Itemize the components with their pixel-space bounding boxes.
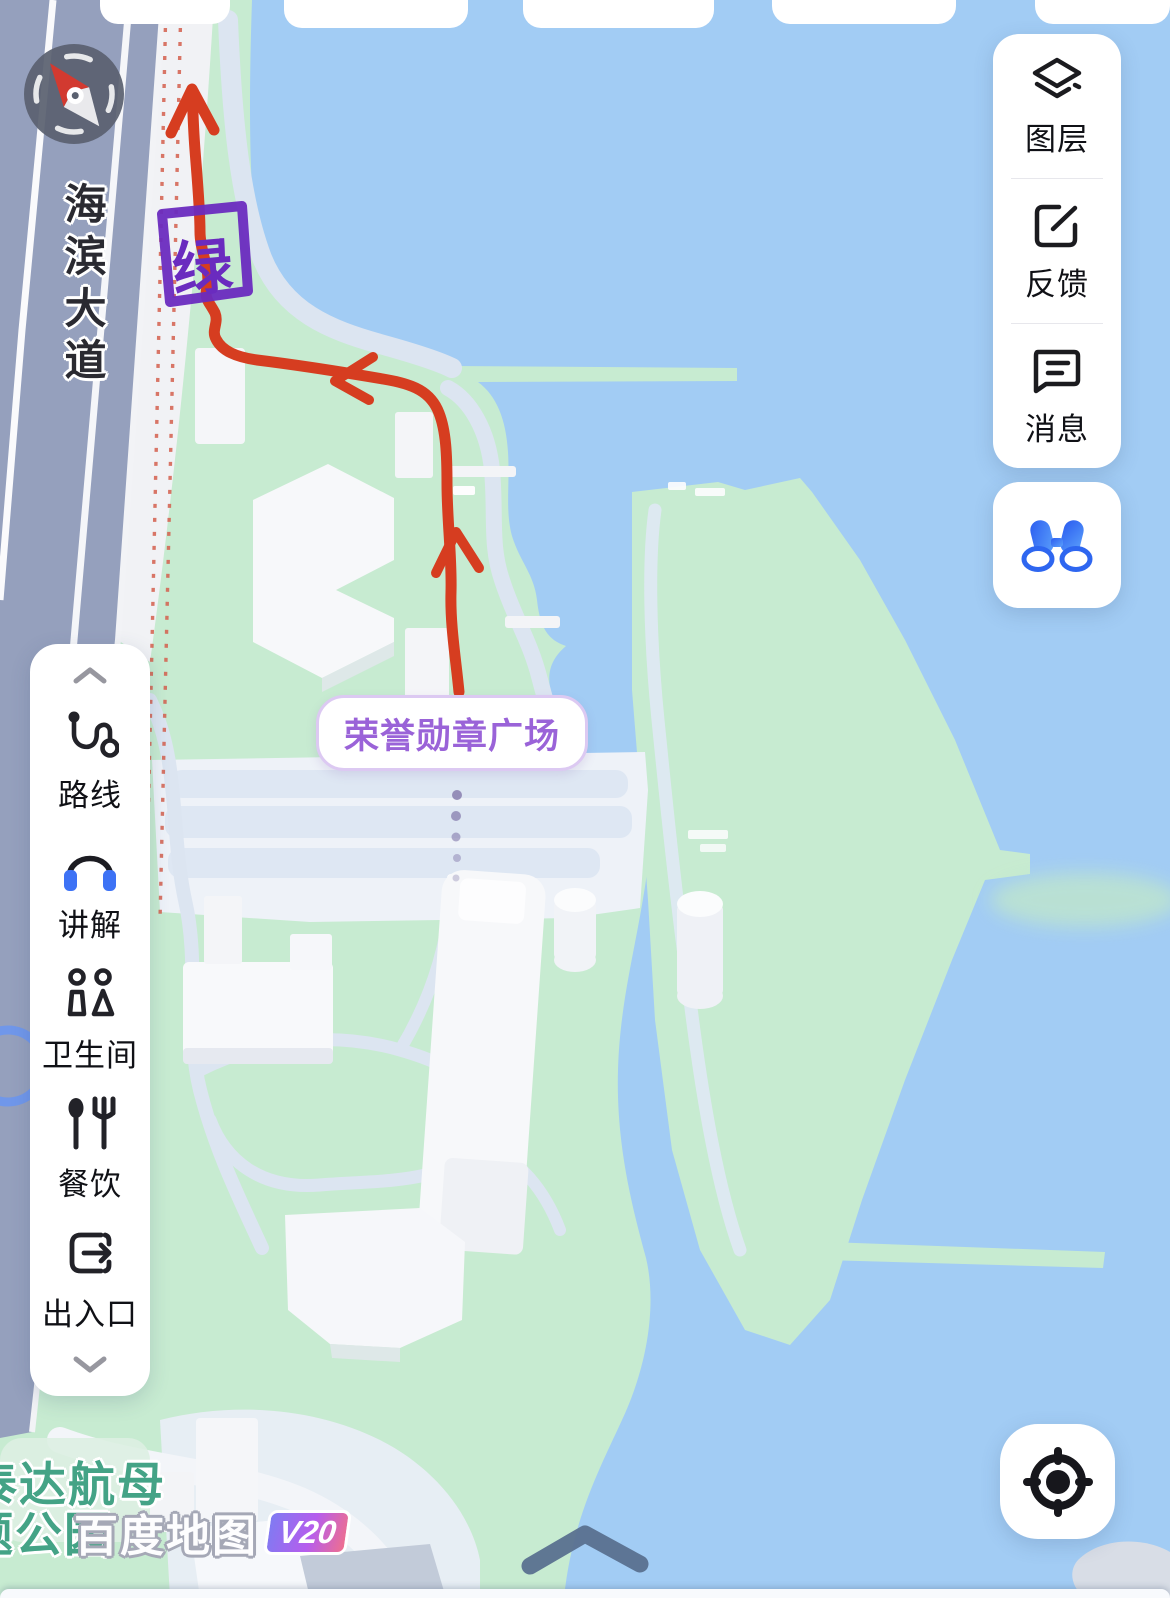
route-button[interactable]: 路线	[58, 706, 122, 815]
route-label: 路线	[58, 770, 122, 815]
dining-label: 餐饮	[58, 1159, 122, 1204]
layers-label: 图层	[1025, 114, 1089, 159]
watermark-version: V20	[276, 1514, 338, 1551]
route-icon	[61, 706, 119, 764]
message-icon	[1029, 344, 1085, 398]
headphones-icon	[61, 836, 119, 894]
panel-divider	[1011, 178, 1103, 179]
bottom-sheet-handle[interactable]	[518, 1524, 652, 1578]
entrance-exit-label: 出入口	[42, 1289, 138, 1334]
handwritten-annotation: 绿	[168, 218, 235, 310]
messages-button[interactable]: 消息	[993, 344, 1121, 449]
baidu-map-screen: 海滨大道 绿 荣誉勋章广场 泰达航母 题公园 百度地图 V20	[0, 0, 1170, 1598]
facility-panel: 路线 讲解 卫生间	[30, 644, 150, 1396]
bottom-sheet-edge[interactable]	[0, 1589, 1170, 1598]
watermark-version-badge: V20	[263, 1510, 352, 1555]
plaza-bands	[165, 770, 632, 878]
compass[interactable]	[22, 42, 126, 146]
locate-me-button[interactable]	[1000, 1424, 1115, 1539]
audio-guide-label: 讲解	[58, 900, 122, 945]
entrance-exit-button[interactable]: 出入口	[42, 1225, 138, 1334]
poi-bubble-label: 荣誉勋章广场	[344, 708, 560, 759]
watermark: 百度地图 V20	[74, 1500, 349, 1564]
binoculars-icon	[1020, 514, 1094, 576]
map-tools-panel: 图层 反馈 消息	[993, 34, 1121, 468]
exit-icon	[61, 1225, 119, 1283]
audio-guide-button[interactable]: 讲解	[58, 836, 122, 945]
feedback-label: 反馈	[1025, 259, 1089, 304]
cutlery-icon	[61, 1095, 119, 1153]
scroll-up-chevron[interactable]	[68, 665, 112, 685]
road-name-label: 海滨大道	[52, 182, 113, 390]
toilet-label: 卫生间	[42, 1030, 138, 1075]
feedback-button[interactable]: 反馈	[993, 199, 1121, 304]
layers-button[interactable]: 图层	[993, 54, 1121, 159]
ar-tour-button[interactable]	[993, 482, 1121, 608]
panel-divider	[1011, 323, 1103, 324]
scroll-down-chevron[interactable]	[68, 1355, 112, 1375]
dining-button[interactable]: 餐饮	[58, 1095, 122, 1204]
toilet-people-icon	[61, 966, 119, 1024]
layers-icon	[1029, 54, 1085, 108]
locate-target-icon	[1019, 1443, 1097, 1521]
messages-label: 消息	[1025, 404, 1089, 449]
toilet-button[interactable]: 卫生间	[42, 966, 138, 1075]
watermark-text: 百度地图	[74, 1500, 258, 1564]
feedback-icon	[1029, 199, 1085, 253]
poi-bubble[interactable]: 荣誉勋章广场	[316, 695, 588, 771]
